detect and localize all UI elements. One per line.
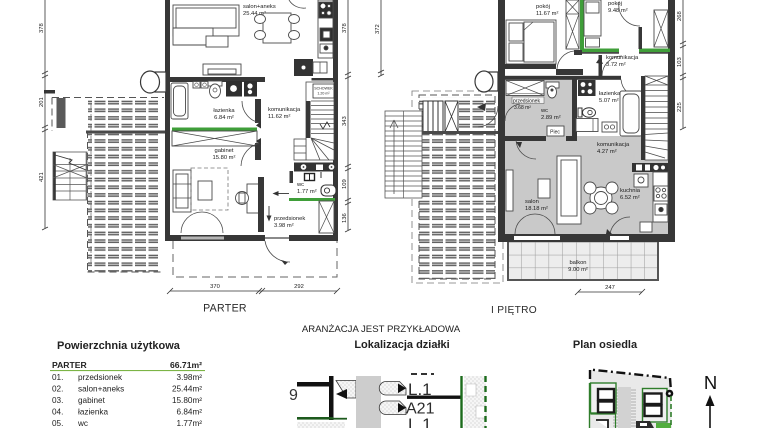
svg-text:Powierzchnia użytkowa: Powierzchnia użytkowa — [57, 340, 181, 352]
svg-text:6.52 m²: 6.52 m² — [620, 195, 640, 201]
svg-text:3.98m²: 3.98m² — [177, 373, 203, 382]
svg-text:201: 201 — [39, 97, 45, 107]
svg-text:378: 378 — [342, 23, 348, 33]
svg-text:Lokalizacja działki: Lokalizacja działki — [354, 339, 449, 351]
svg-text:PARTER: PARTER — [52, 360, 87, 370]
svg-text:L.1: L.1 — [408, 415, 432, 428]
svg-text:2.89 m²: 2.89 m² — [541, 115, 561, 121]
svg-text:komunikacja: komunikacja — [268, 107, 301, 113]
svg-text:66.71m²: 66.71m² — [170, 360, 202, 370]
svg-text:I PIĘTRO: I PIĘTRO — [491, 305, 537, 316]
svg-text:przedsionek: przedsionek — [274, 216, 305, 222]
svg-text:15.80m²: 15.80m² — [172, 396, 202, 405]
svg-text:komunikacja: komunikacja — [597, 142, 630, 148]
svg-text:Piec: Piec — [550, 130, 560, 136]
svg-text:247: 247 — [605, 285, 615, 291]
svg-text:1.20 m²: 1.20 m² — [317, 92, 330, 96]
svg-text:343: 343 — [342, 116, 348, 126]
svg-text:kuchnia: kuchnia — [620, 188, 641, 194]
svg-text:136: 136 — [342, 213, 348, 223]
svg-text:421: 421 — [39, 172, 45, 182]
svg-text:Plan osiedla: Plan osiedla — [573, 339, 638, 351]
svg-text:109: 109 — [342, 179, 348, 189]
svg-text:komunikacja: komunikacja — [606, 55, 639, 61]
svg-text:przedsionek: przedsionek — [78, 373, 123, 382]
svg-text:3.72 m²: 3.72 m² — [606, 62, 626, 68]
svg-text:18.18 m²: 18.18 m² — [525, 206, 548, 212]
svg-text:370: 370 — [210, 284, 220, 290]
svg-text:łazienka: łazienka — [213, 108, 235, 114]
svg-text:wc: wc — [540, 108, 548, 114]
svg-text:gabinet: gabinet — [78, 396, 106, 405]
svg-text:4.27 m²: 4.27 m² — [597, 149, 617, 155]
svg-text:pokój: pokój — [608, 1, 622, 7]
svg-text:3.98 m²: 3.98 m² — [274, 223, 294, 229]
svg-text:9.00 m²: 9.00 m² — [568, 267, 588, 273]
svg-text:3.68 m²: 3.68 m² — [514, 105, 531, 111]
svg-text:225: 225 — [677, 102, 683, 112]
svg-text:salon+aneks: salon+aneks — [78, 385, 124, 394]
svg-text:pokój: pokój — [536, 4, 550, 10]
svg-text:1.77 m²: 1.77 m² — [297, 189, 317, 195]
svg-text:6.84 m²: 6.84 m² — [214, 115, 234, 121]
svg-text:03.: 03. — [52, 396, 63, 405]
svg-text:1.77m²: 1.77m² — [177, 419, 203, 428]
svg-text:salon: salon — [525, 199, 539, 205]
svg-text:11.67 m²: 11.67 m² — [536, 11, 559, 17]
svg-text:378: 378 — [39, 23, 45, 33]
svg-text:292: 292 — [294, 284, 304, 290]
svg-text:01.: 01. — [52, 373, 63, 382]
svg-text:salon+aneks: salon+aneks — [243, 4, 276, 10]
svg-text:SCHOWEK: SCHOWEK — [314, 87, 333, 91]
svg-text:11.62 m²: 11.62 m² — [268, 114, 291, 120]
svg-text:balkon: balkon — [569, 260, 586, 266]
svg-text:268: 268 — [677, 11, 683, 21]
svg-text:25.44m²: 25.44m² — [172, 385, 202, 394]
svg-text:wc: wc — [77, 419, 88, 428]
svg-text:ARANŻACJA JEST PRZYKŁADOWA: ARANŻACJA JEST PRZYKŁADOWA — [302, 324, 461, 335]
svg-text:wc: wc — [296, 182, 304, 188]
svg-text:372: 372 — [375, 24, 381, 34]
svg-text:przedsionek: przedsionek — [513, 99, 540, 105]
svg-text:04.: 04. — [52, 408, 63, 417]
svg-text:15.80 m²: 15.80 m² — [213, 155, 236, 161]
svg-text:9.48 m²: 9.48 m² — [608, 8, 628, 14]
svg-text:103: 103 — [677, 57, 683, 67]
svg-text:łazienka: łazienka — [78, 408, 108, 417]
svg-text:6.84m²: 6.84m² — [177, 408, 203, 417]
svg-text:05.: 05. — [52, 419, 63, 428]
svg-text:PARTER: PARTER — [203, 303, 247, 315]
svg-text:gabinet: gabinet — [214, 148, 233, 154]
svg-text:N: N — [704, 372, 717, 393]
svg-text:łazienka: łazienka — [599, 91, 621, 97]
svg-text:02.: 02. — [52, 385, 63, 394]
svg-text:5.07 m²: 5.07 m² — [599, 98, 619, 104]
svg-text:9: 9 — [289, 387, 298, 404]
